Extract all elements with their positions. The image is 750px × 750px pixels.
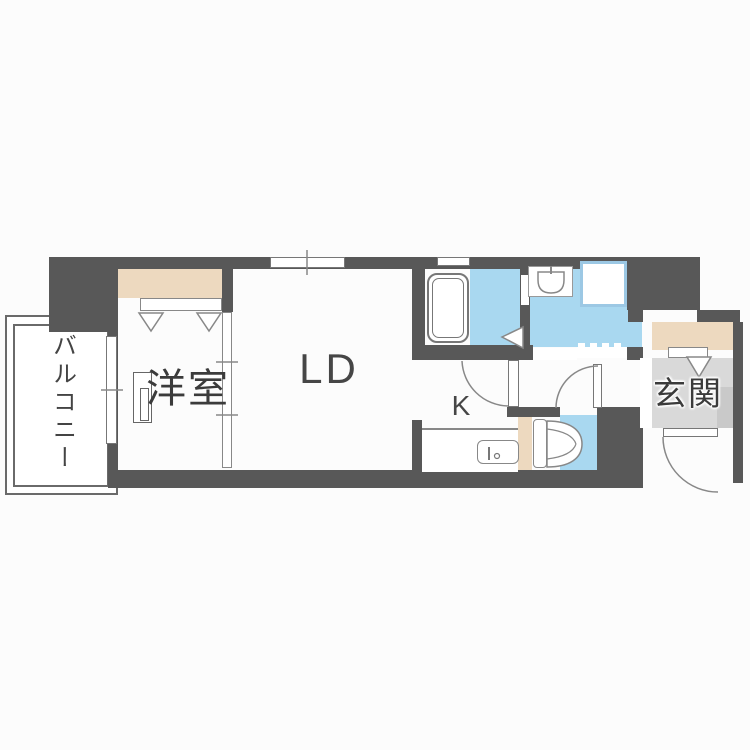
bath-door-triangle xyxy=(502,327,523,348)
toilet-icon xyxy=(547,421,582,467)
balcony-label: バルコニー xyxy=(45,333,80,473)
closet-door-triangle xyxy=(197,313,221,331)
living-dining-label: LD xyxy=(299,345,359,393)
washbasin-icon xyxy=(538,272,564,293)
toilet-door-arc xyxy=(556,366,598,408)
western-room-label: 洋室 xyxy=(146,356,230,414)
entrance-label: 玄関 xyxy=(653,367,723,415)
plan-linework xyxy=(0,0,750,750)
closet-door-triangle xyxy=(139,313,163,331)
entry-door-arc xyxy=(663,437,718,492)
kitchen-faucet-knob xyxy=(495,454,500,459)
kitchen-label: K xyxy=(452,390,471,422)
floor-plan: バルコニー 洋室 LD K 玄関 xyxy=(0,0,750,750)
